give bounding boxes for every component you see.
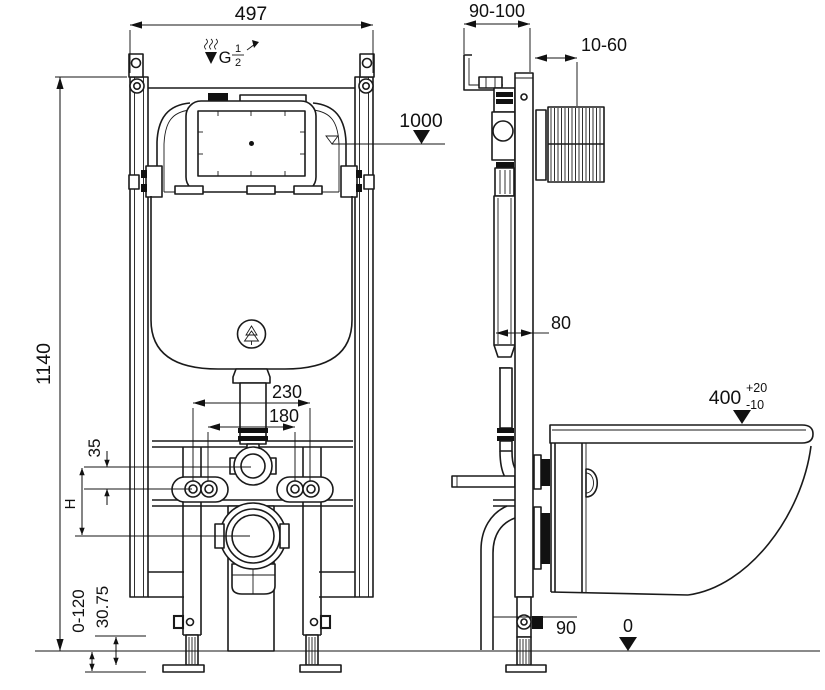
flush-plate-window [186,93,316,192]
dim-400: 400 [709,387,742,409]
dim-0-120: 0-120 [69,589,88,632]
flush-bend-connector [230,444,276,485]
brand-mark-icon [238,320,266,348]
water-supply-icon: G 1 2 [205,39,260,69]
dim-400-tol-plus: +20 [746,381,767,395]
dim-30-75: 30.75 [93,586,112,629]
hanger-tabs [129,54,374,93]
finished-wall-section [536,107,604,182]
dim-80: 80 [551,313,571,333]
bowl-view [534,425,813,595]
dim-90: 90 [556,618,576,638]
dim-180: 180 [269,406,299,426]
dim-35: 35 [85,439,104,458]
dim-497: 497 [235,3,268,25]
inlet-fraction-denominator: 2 [235,57,241,69]
dim-h: H [62,499,79,510]
dim-400-tol-minus: -10 [746,398,764,412]
drain-outlet [215,503,289,651]
dim-10-60: 10-60 [581,35,627,55]
technical-drawing: G 1 2 [0,0,825,690]
seat-rim [550,425,813,443]
inlet-thread-label: G [219,49,232,67]
inlet-fraction-numerator: 1 [235,43,241,55]
dim-0: 0 [623,616,633,636]
bowl-profile [688,446,811,595]
installation-frame-diagram: G 1 2 [0,0,825,690]
dim-90-100: 90-100 [469,1,525,21]
frame-plate [515,73,533,597]
front-view: G 1 2 [129,39,445,672]
dim-230: 230 [272,382,302,402]
dim-1140: 1140 [33,343,55,385]
dim-1000: 1000 [399,110,443,132]
